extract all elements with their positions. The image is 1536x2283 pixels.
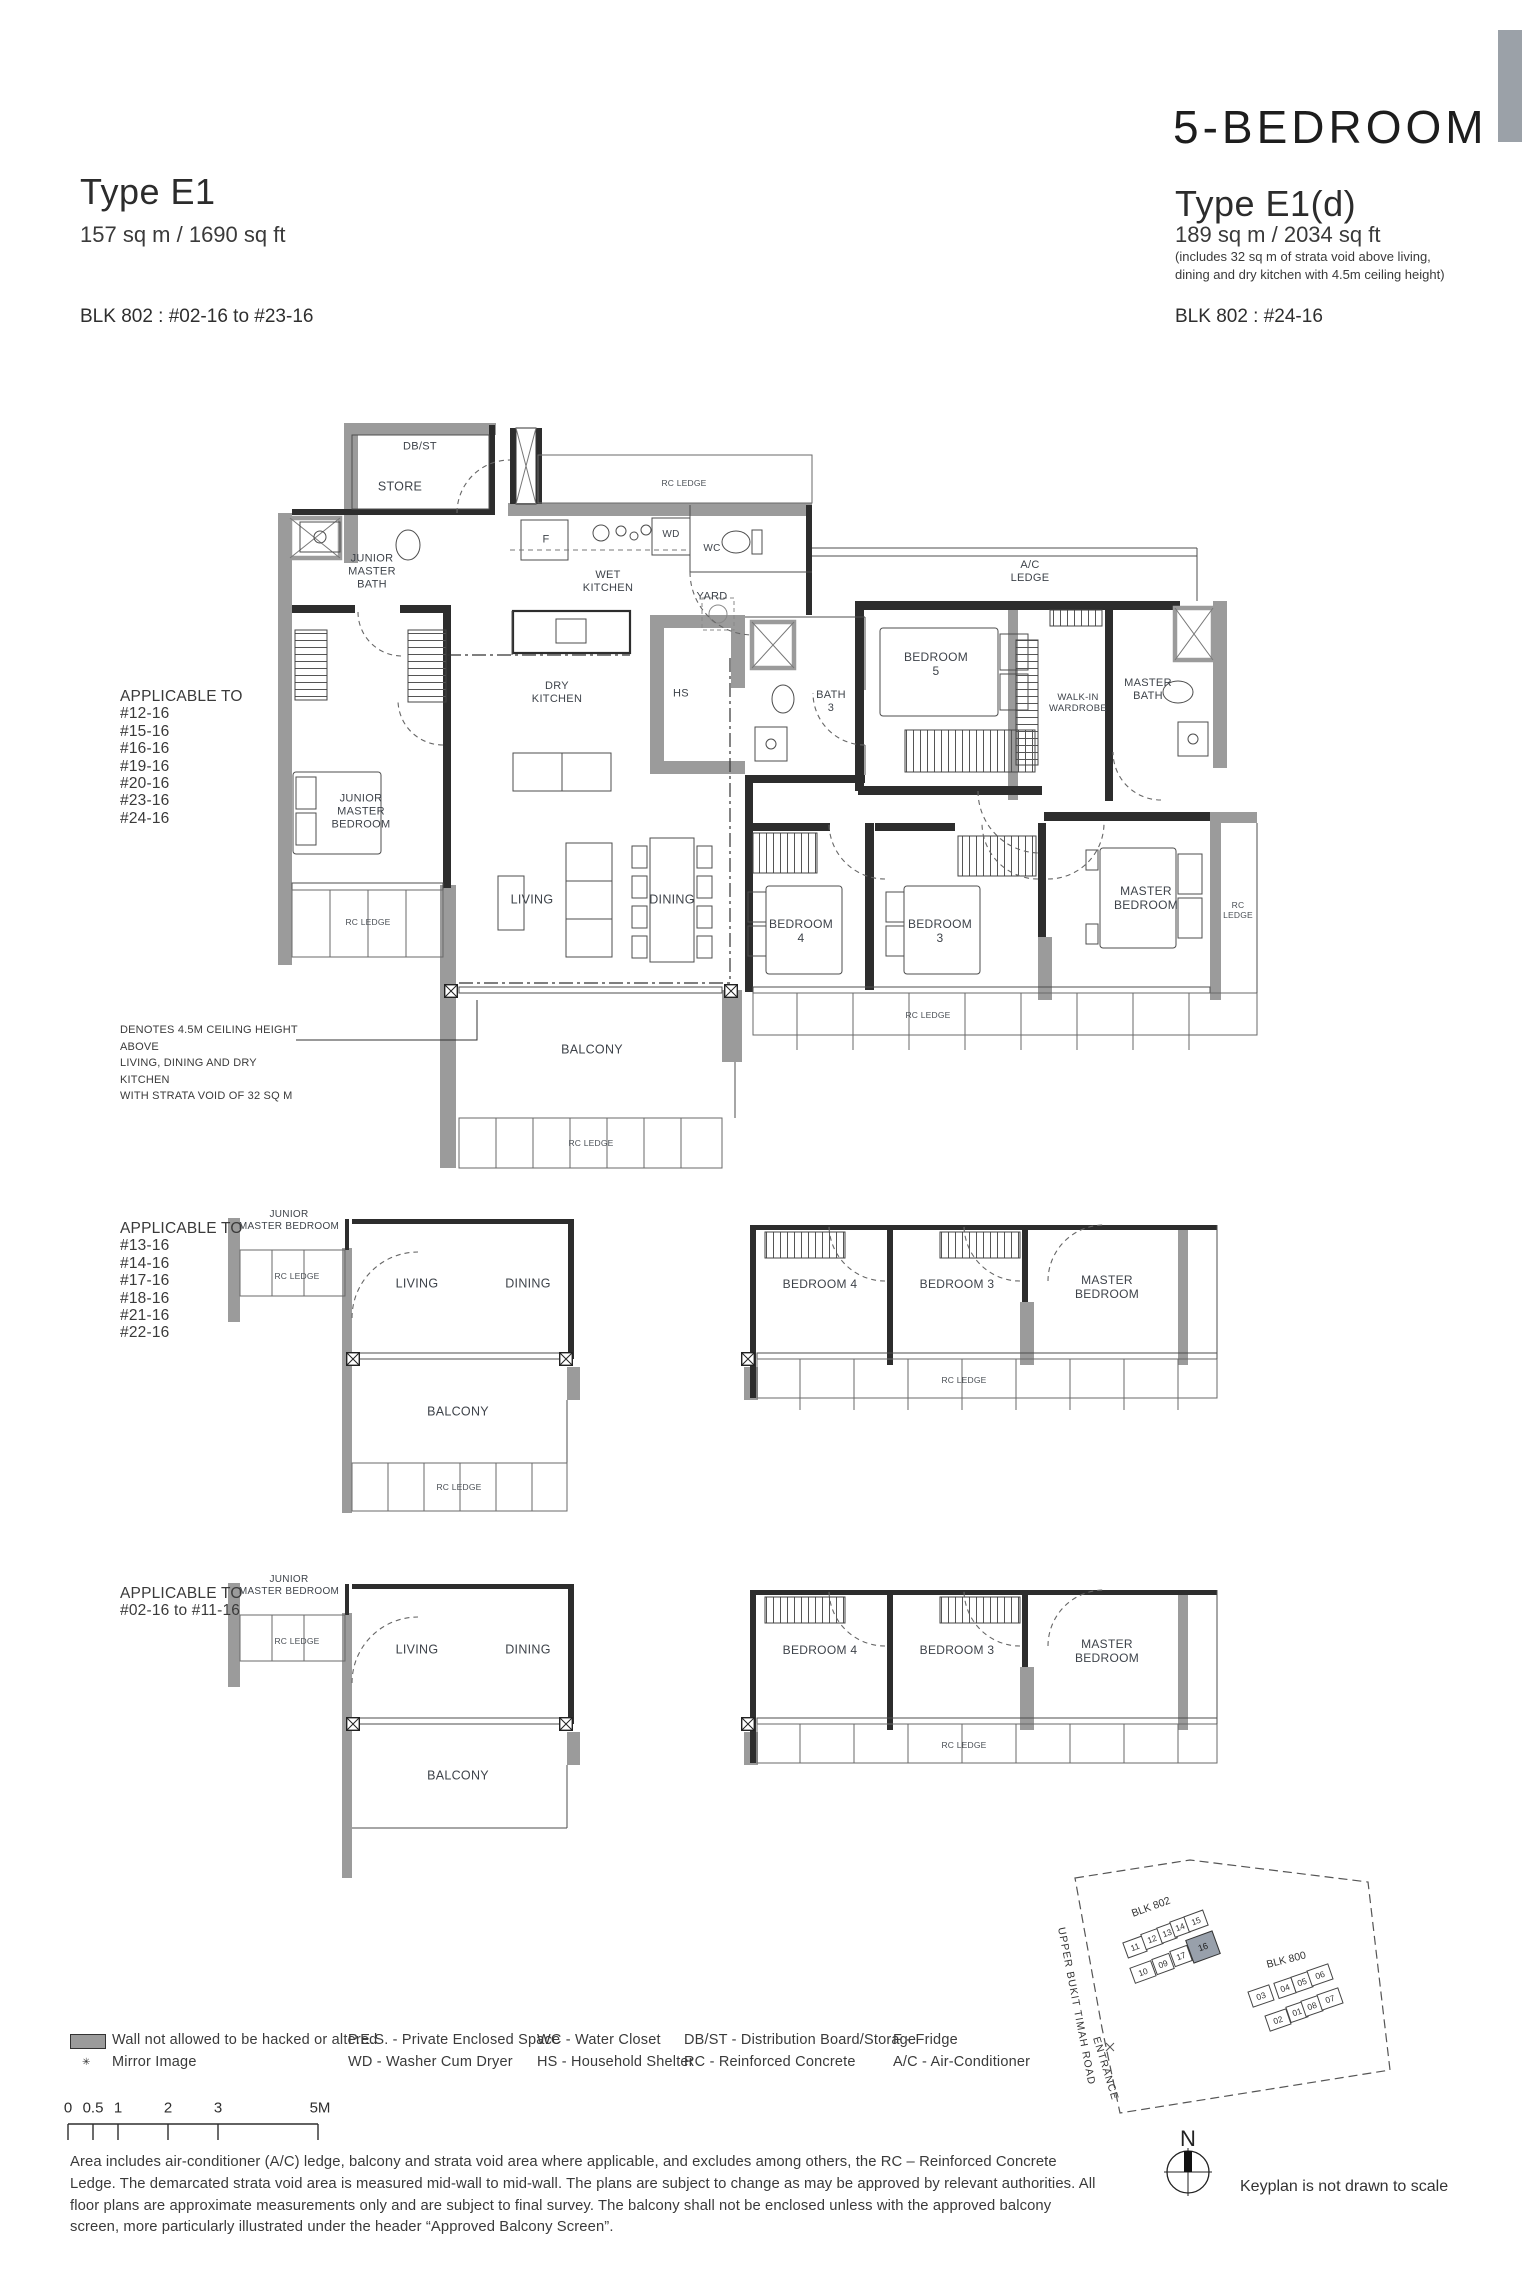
- keyplan-blk800-label: BLK 800: [1265, 1949, 1307, 1970]
- label-washer-dryer: WD: [662, 529, 679, 541]
- applicable-unit: #24-16: [120, 810, 243, 827]
- room-label-master-bedroom: MASTER BEDROOM: [1075, 1273, 1139, 1301]
- room-label-store: STORE: [378, 480, 422, 495]
- label-rc-ledge-balcony: RC LEDGE: [568, 1138, 613, 1148]
- column-marker-icon: [347, 1353, 360, 1366]
- scale-tick: 3: [214, 2100, 222, 2117]
- label-ac-ledge: A/C LEDGE: [1011, 559, 1050, 585]
- plan-main-strata-void-line: [447, 655, 730, 983]
- applicable-unit: #20-16: [120, 775, 243, 792]
- scale-tick: 1: [114, 2100, 122, 2117]
- applicable-unit: #13-16: [120, 1237, 243, 1254]
- keyplan: BLK 802 BLK 800 11 12 13 14 15 10 09 17 …: [1055, 1860, 1390, 2196]
- column-marker-icon: [560, 1718, 573, 1731]
- room-label-dining: DINING: [649, 893, 695, 908]
- legend-pes: P.E.S. - Private Enclosed Space: [348, 2032, 560, 2048]
- room-label-junior-master-bath: JUNIOR MASTER BATH: [348, 553, 396, 592]
- room-label-master-bedroom: MASTER BEDROOM: [1075, 1637, 1139, 1665]
- room-label-bedroom4: BEDROOM 4: [783, 1277, 858, 1291]
- column-marker-icon: [742, 1718, 755, 1731]
- applicable-title: APPLICABLE TO: [120, 1220, 243, 1237]
- plan-main-wardrobes: [295, 610, 1102, 876]
- room-label-bedroom3: BEDROOM 3: [908, 917, 972, 945]
- room-label-junior-master-bedroom: JUNIOR MASTER BEDROOM: [332, 793, 391, 832]
- room-label-balcony: BALCONY: [427, 1405, 489, 1420]
- applicable-unit: #19-16: [120, 758, 243, 775]
- scale-tick: 0: [64, 2100, 72, 2117]
- label-fridge: F: [542, 534, 549, 547]
- entrance-arrow-icon: [1106, 2043, 1114, 2051]
- applicable-range: #02-16 to #11-16: [120, 1602, 243, 1619]
- mirror-image-marker-icon: ✳: [82, 2057, 90, 2068]
- plan-mid-thin-lines: [240, 1225, 1217, 1511]
- room-label-household-shelter: HS: [673, 688, 689, 701]
- room-label-bedroom3: BEDROOM 3: [920, 1643, 995, 1657]
- label-rc-ledge: RC LEDGE: [274, 1271, 319, 1281]
- keyplan-road-label: UPPER BUKIT TIMAH ROAD: [1055, 1926, 1097, 2086]
- wall-swatch-icon: [70, 2034, 106, 2049]
- legend-wall: Wall not allowed to be hacked or altered: [112, 2032, 377, 2048]
- legend-f: F - Fridge: [893, 2032, 958, 2048]
- applicable-unit: #21-16: [120, 1307, 243, 1324]
- applicable-unit: #16-16: [120, 740, 243, 757]
- applicable-unit: #14-16: [120, 1255, 243, 1272]
- label-rc-ledge: RC LEDGE: [274, 1636, 319, 1646]
- room-label-master-bedroom: MASTER BEDROOM: [1114, 884, 1178, 912]
- room-label-living: LIVING: [396, 1277, 439, 1292]
- label-rc-ledge-bedrooms: RC LEDGE: [905, 1010, 950, 1020]
- keyplan-unit: 06: [1307, 1964, 1333, 1986]
- room-label-junior-master-bedroom: JUNIOR MASTER BEDROOM: [239, 1574, 339, 1598]
- room-label-dining: DINING: [505, 1277, 551, 1292]
- legend-mirror: Mirror Image: [112, 2054, 197, 2070]
- column-marker-icon: [560, 1353, 573, 1366]
- applicable-to-low: APPLICABLE TO #02-16 to #11-16: [120, 1585, 243, 1620]
- room-label-balcony: BALCONY: [561, 1043, 623, 1058]
- column-marker-icon: [725, 985, 738, 998]
- applicable-unit: #17-16: [120, 1272, 243, 1289]
- legend-dbst: DB/ST - Distribution Board/Storage: [684, 2032, 916, 2048]
- room-label-wet-kitchen: WET KITCHEN: [583, 569, 633, 595]
- plan-low-thin-lines: [240, 1590, 1217, 1828]
- room-label-bath3: BATH 3: [816, 689, 846, 715]
- room-label-dry-kitchen: DRY KITCHEN: [532, 680, 582, 706]
- room-label-bedroom4: BEDROOM 4: [783, 1643, 858, 1657]
- room-label-dbst: DB/ST: [403, 441, 437, 454]
- applicable-title: APPLICABLE TO: [120, 688, 243, 705]
- label-water-closet: WC: [703, 543, 720, 555]
- north-label: N: [1180, 2126, 1196, 2151]
- applicable-title: APPLICABLE TO: [120, 1585, 243, 1602]
- applicable-unit: #12-16: [120, 705, 243, 722]
- keyplan-unit: 03: [1248, 1985, 1274, 2007]
- room-label-bedroom4: BEDROOM 4: [769, 917, 833, 945]
- scale-tick: 0.5: [83, 2100, 104, 2117]
- room-label-balcony: BALCONY: [427, 1769, 489, 1784]
- room-label-walkin-wardrobe: WALK-IN WARDROBE: [1049, 692, 1107, 714]
- keyplan-boundary: [1075, 1860, 1390, 2113]
- legend-wc: WC - Water Closet: [537, 2032, 661, 2048]
- label-rc-ledge-bedrooms: RC LEDGE: [941, 1375, 986, 1385]
- keyplan-blk802-label: BLK 802: [1130, 1895, 1172, 1920]
- legend-ac: A/C - Air-Conditioner: [893, 2054, 1030, 2070]
- applicable-to-main: APPLICABLE TO #12-16 #15-16 #16-16 #19-1…: [120, 688, 243, 827]
- disclaimer-text: Area includes air-conditioner (A/C) ledg…: [70, 2152, 1150, 2239]
- room-label-bedroom3: BEDROOM 3: [920, 1277, 995, 1291]
- label-rc-ledge-top: RC LEDGE: [661, 478, 706, 488]
- keyplan-unit: 07: [1317, 1988, 1343, 2010]
- floorplan-page: Type E1 157 sq m / 1690 sq ft BLK 802 : …: [0, 0, 1536, 2283]
- room-label-yard: YARD: [697, 591, 728, 604]
- scale-bar: [68, 2124, 318, 2140]
- label-rc-ledge-left: RC LEDGE: [345, 917, 390, 927]
- plan-mid-gray-walls: [228, 1218, 1188, 1513]
- scale-tick: 2: [164, 2100, 172, 2117]
- keyplan-unit: 09: [1152, 1953, 1174, 1974]
- applicable-to-mid: APPLICABLE TO #13-16 #14-16 #17-16 #18-1…: [120, 1220, 243, 1342]
- applicable-unit: #18-16: [120, 1290, 243, 1307]
- label-rc-ledge-balcony: RC LEDGE: [436, 1482, 481, 1492]
- room-label-dining: DINING: [505, 1643, 551, 1658]
- scale-tick: 5M: [310, 2100, 331, 2117]
- room-label-master-bath: MASTER BATH: [1124, 677, 1172, 703]
- applicable-unit: #22-16: [120, 1324, 243, 1341]
- legend-wd: WD - Washer Cum Dryer: [348, 2054, 513, 2070]
- keyplan-unit: 10: [1130, 1961, 1156, 1984]
- room-label-junior-master-bedroom: JUNIOR MASTER BEDROOM: [239, 1209, 339, 1233]
- applicable-unit: #15-16: [120, 723, 243, 740]
- floorplan-linework: BLK 802 BLK 800 11 12 13 14 15 10 09 17 …: [0, 0, 1536, 2283]
- column-marker-icon: [742, 1353, 755, 1366]
- north-compass-icon: [1164, 2148, 1212, 2196]
- strata-void-note: DENOTES 4.5M CEILING HEIGHT ABOVE LIVING…: [120, 1022, 300, 1105]
- label-rc-ledge-right: RC LEDGE: [1223, 900, 1253, 920]
- label-rc-ledge-bedrooms: RC LEDGE: [941, 1740, 986, 1750]
- plan-low-gray-walls: [228, 1583, 1188, 1878]
- keyplan-note: Keyplan is not drawn to scale: [1240, 2178, 1448, 2196]
- legend-hs: HS - Household Shelter: [537, 2054, 694, 2070]
- room-label-living: LIVING: [396, 1643, 439, 1658]
- column-marker-icon: [347, 1718, 360, 1731]
- room-label-living: LIVING: [511, 893, 554, 908]
- legend-rc: RC - Reinforced Concrete: [684, 2054, 856, 2070]
- applicable-unit: #23-16: [120, 792, 243, 809]
- room-label-bedroom5: BEDROOM 5: [904, 650, 968, 678]
- column-marker-icon: [445, 985, 458, 998]
